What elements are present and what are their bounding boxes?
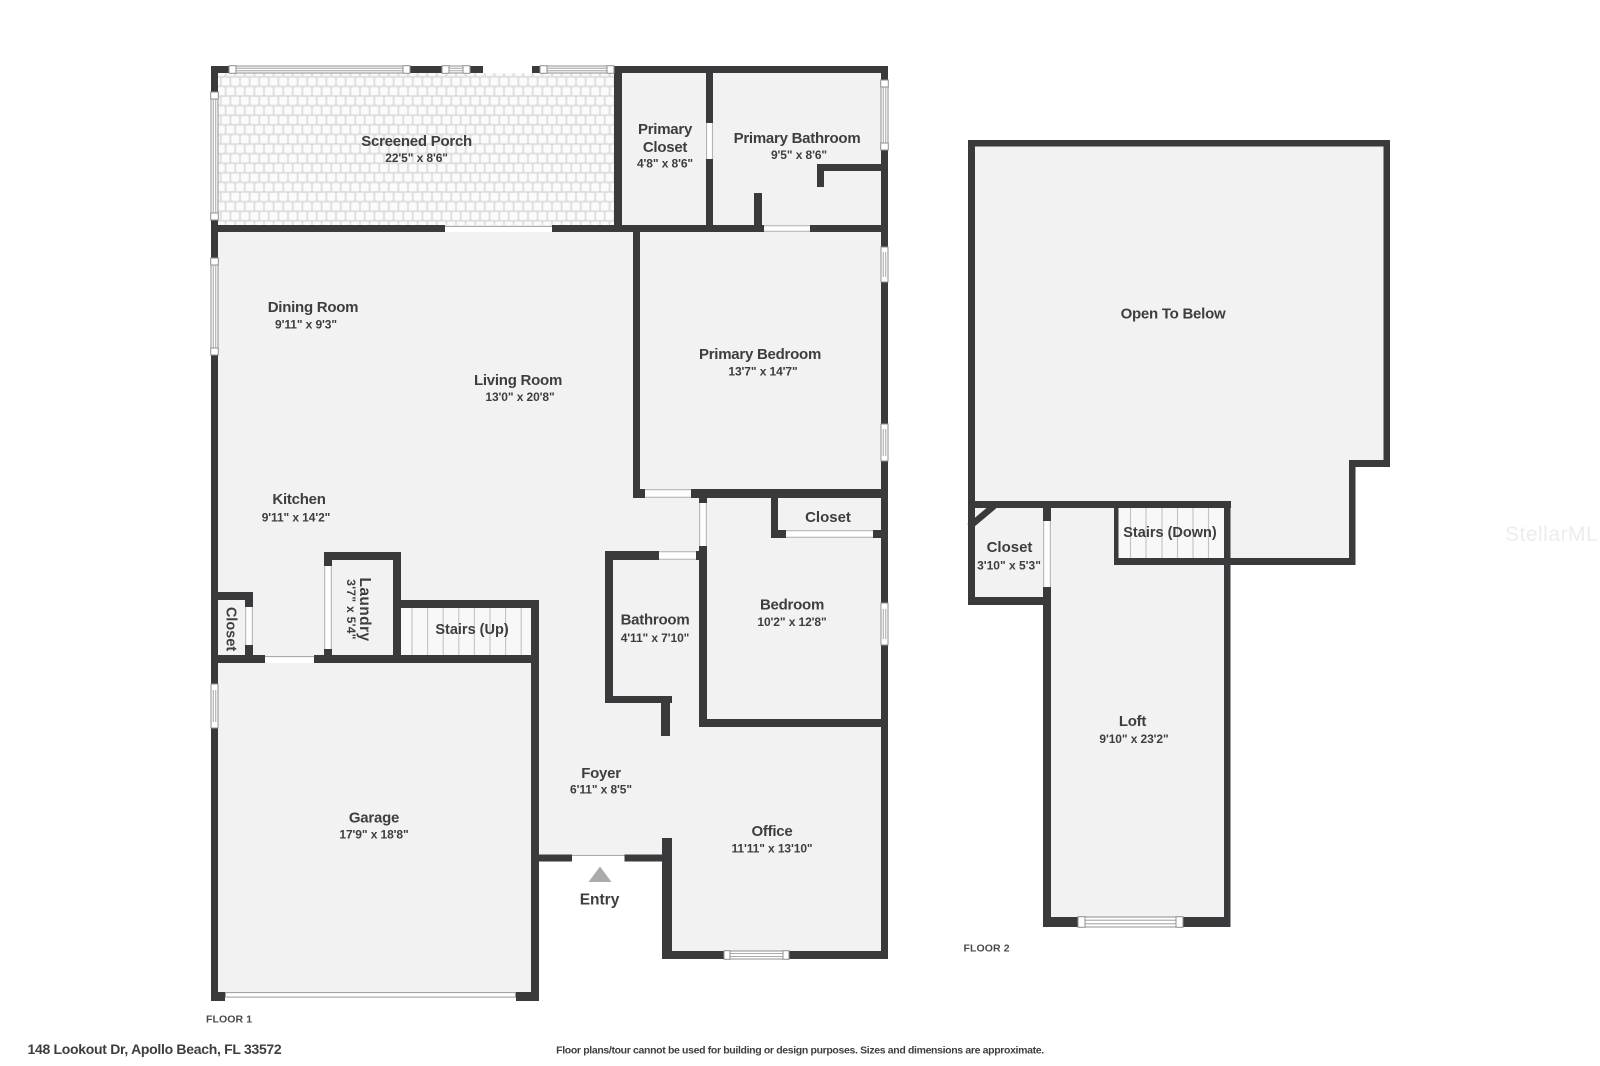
svg-text:3'10" x 5'3": 3'10" x 5'3": [977, 559, 1041, 573]
svg-text:Foyer: Foyer: [581, 765, 621, 782]
svg-text:6'11" x 8'5": 6'11" x 8'5": [570, 783, 632, 797]
svg-text:Closet: Closet: [643, 139, 688, 156]
svg-text:FLOOR 1: FLOOR 1: [206, 1014, 252, 1026]
svg-text:Living Room: Living Room: [474, 372, 562, 389]
svg-text:StellarMLS: StellarMLS: [1505, 523, 1600, 546]
svg-text:148 Lookout Dr, Apollo Beach,: 148 Lookout Dr, Apollo Beach, FL 33572: [28, 1041, 282, 1057]
svg-text:Closet: Closet: [223, 607, 239, 651]
svg-text:4'8" x 8'6": 4'8" x 8'6": [637, 157, 693, 171]
svg-text:Primary Bathroom: Primary Bathroom: [734, 130, 861, 147]
svg-text:Primary Bedroom: Primary Bedroom: [699, 346, 821, 363]
svg-text:9'5" x 8'6": 9'5" x 8'6": [771, 148, 827, 162]
svg-text:Floor plans/tour cannot be use: Floor plans/tour cannot be used for buil…: [556, 1045, 1044, 1057]
svg-text:17'9" x 18'8": 17'9" x 18'8": [339, 828, 408, 842]
svg-text:FLOOR 2: FLOOR 2: [964, 943, 1010, 955]
svg-text:Loft: Loft: [1119, 713, 1147, 730]
svg-text:Stairs (Up): Stairs (Up): [435, 622, 508, 638]
svg-text:Bedroom: Bedroom: [760, 597, 824, 614]
svg-text:Bathroom: Bathroom: [621, 612, 690, 629]
svg-text:10'2" x 12'8": 10'2" x 12'8": [757, 615, 826, 629]
svg-text:Office: Office: [751, 823, 792, 840]
svg-text:4'11" x 7'10": 4'11" x 7'10": [621, 631, 690, 645]
svg-text:Closet: Closet: [987, 539, 1033, 556]
svg-text:13'7" x 14'7": 13'7" x 14'7": [728, 365, 797, 379]
svg-text:9'11" x 9'3": 9'11" x 9'3": [275, 318, 337, 332]
svg-text:Stairs (Down): Stairs (Down): [1123, 525, 1217, 541]
svg-text:Entry: Entry: [580, 892, 620, 909]
svg-text:9'11" x 14'2": 9'11" x 14'2": [262, 511, 331, 525]
svg-text:Kitchen: Kitchen: [272, 491, 325, 508]
svg-text:3'7" x 5'4": 3'7" x 5'4": [344, 579, 358, 639]
svg-text:22'5" x 8'6": 22'5" x 8'6": [385, 151, 448, 165]
svg-text:11'11" x 13'10": 11'11" x 13'10": [732, 842, 813, 856]
svg-text:Closet: Closet: [805, 509, 851, 526]
svg-text:Open To Below: Open To Below: [1121, 306, 1226, 323]
svg-text:Primary: Primary: [638, 121, 693, 138]
svg-text:9'10" x 23'2": 9'10" x 23'2": [1099, 732, 1168, 746]
svg-text:Dining Room: Dining Room: [268, 299, 359, 316]
svg-text:13'0" x 20'8": 13'0" x 20'8": [485, 390, 554, 404]
svg-text:Garage: Garage: [349, 810, 399, 827]
svg-text:Screened Porch: Screened Porch: [361, 133, 472, 150]
